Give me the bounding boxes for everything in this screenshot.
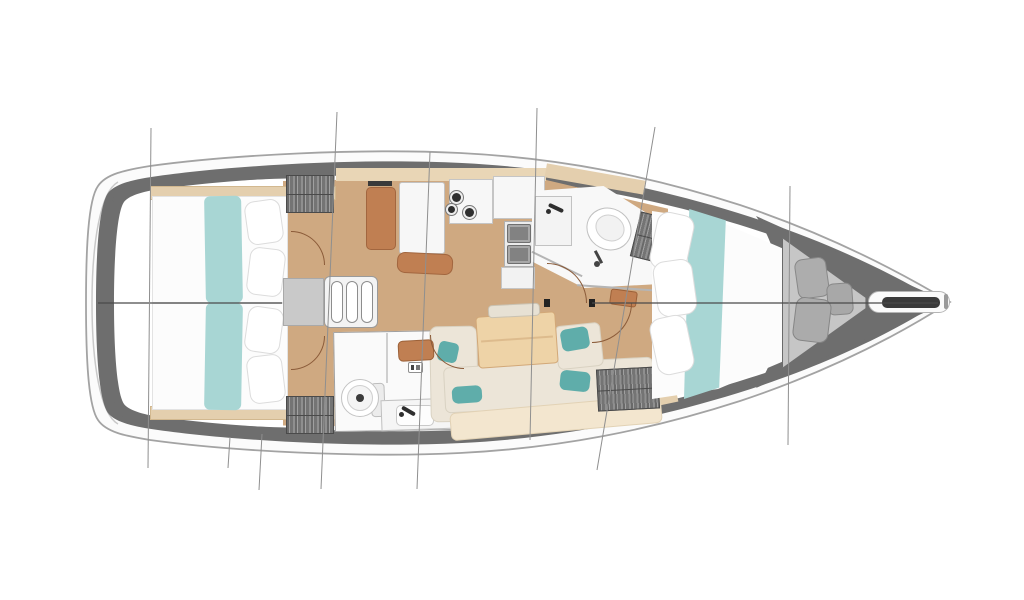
station-line-6 — [788, 186, 790, 445]
station-line-4 — [530, 108, 537, 440]
station-line-1 — [148, 128, 151, 468]
station-line-5 — [597, 127, 655, 470]
section-lines-layer — [0, 0, 1024, 600]
station-line-7 — [228, 437, 230, 468]
station-line-8 — [259, 434, 262, 490]
yacht-interior-floorplan — [0, 0, 1024, 600]
station-line-3 — [417, 152, 430, 489]
station-line-2 — [321, 112, 337, 489]
